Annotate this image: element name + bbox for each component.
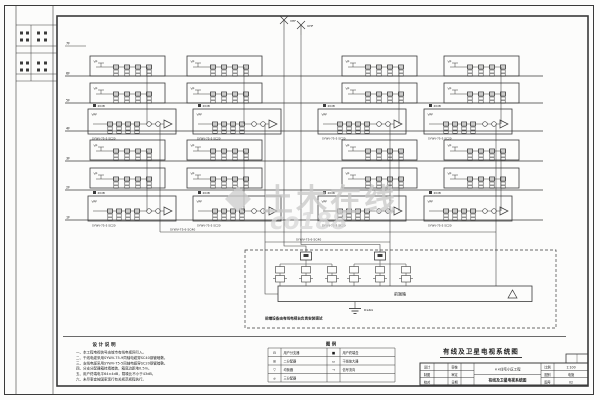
label-boxes-branch_cable_label: SYWV-75-5 SC20	[428, 137, 452, 141]
label-boxes-wide_label: VPF	[197, 200, 203, 204]
label-legend-rows-0-name2: 用户终端盒	[343, 350, 360, 355]
label-boxes-wide_gain_label: 20dB	[98, 191, 105, 195]
label-titleblock-project_name: ××住宅小区工程	[494, 367, 521, 372]
label-boxes-std_label: VP	[94, 87, 98, 91]
label-legend-rows-3-sym1: ⌀	[273, 376, 275, 380]
label-boxes-wide_gain_label: 20dB	[434, 191, 441, 195]
label-boxes-wide_label: VPF	[92, 200, 98, 204]
label-boxes-std_label: VP	[191, 87, 195, 91]
label-antennas-right_label: UHF	[307, 24, 313, 28]
label-floors-1: 6F	[66, 72, 70, 76]
label-titleblock-scale_label: 比例	[544, 365, 550, 370]
label-boxes-std_label: VP	[448, 60, 452, 64]
bottom-annotations: 设 计 说 明一、本工程电视信号由城市有线电视网引入。二、干线电缆采用SYWV-…	[63, 337, 566, 383]
label-boxes-std_label: VP	[94, 172, 98, 176]
watermark-brand-text: 土木在线	[262, 183, 398, 219]
cad-diagram-canvas: 7F6F5F4F3F2F1FVPVPVPVPVPVPVPVPVPVPVPVPVP…	[0, 0, 600, 400]
label-titleblock-no_value: 02	[569, 380, 573, 384]
label-boxes-wide_gain_label: 20dB	[203, 104, 210, 108]
label-boxes-std_label: VP	[94, 144, 98, 148]
label-boxes-std_label: VP	[346, 144, 350, 148]
label-notes-lines-0: 一、本工程电视信号由城市有线电视网引入。	[76, 350, 146, 355]
label-boxes-std_label: VP	[346, 172, 350, 176]
label-legend-rows-2-name2: 信号流向	[343, 367, 356, 372]
label-titleblock-drawing_name: 有线及卫星电视系统图	[489, 378, 527, 383]
label-riser_labels-0: SYWV-75-9 SC40	[170, 228, 195, 232]
label-boxes-wide_gain_label: 20dB	[328, 104, 335, 108]
label-boxes-branch_cable_label: SYWV-75-5 SC20	[92, 137, 116, 141]
label-floors-4: 3F	[66, 157, 70, 161]
label-riser_labels-1: SYWV-75-9 SC40	[296, 238, 321, 242]
label-titleblock-mid_rows-2-0: 日期	[451, 379, 457, 384]
label-boxes-wide_label: VPF	[197, 113, 203, 117]
label-boxes-wide_label: VPF	[322, 113, 328, 117]
label-boxes-std_label: VP	[191, 172, 195, 176]
label-headend-unit_label: 前端箱	[394, 291, 406, 297]
label-notes-lines-5: 六、未尽事宜按国家现行有关规范规程执行。	[76, 377, 146, 382]
label-legend-rows-0-sym2: ■	[332, 351, 335, 355]
label-boxes-wide_label: VPF	[428, 113, 434, 117]
label-boxes-std_label: VP	[191, 144, 195, 148]
label-boxes-std_label: VP	[94, 60, 98, 64]
label-notes-lines-1: 二、干线电缆采用SYWV-75-9同轴电缆穿SC40钢管暗敷。	[76, 355, 167, 360]
label-legend-rows-1-sym1: ⊞	[273, 359, 276, 363]
label-notes-lines-3: 四、分支分配器箱挂墙暗装，箱底边距地0.5m。	[76, 366, 151, 371]
label-titleblock-left_rows-1-0: 制图	[424, 372, 430, 377]
label-floors-6: 1F	[66, 216, 70, 220]
label-floors-5: 2F	[66, 186, 70, 190]
label-headend-ground_label: R≤4Ω	[364, 308, 374, 312]
cad-diagram-svg: 7F6F5F4F3F2F1FVPVPVPVPVPVPVPVPVPVPVPVPVP…	[0, 0, 600, 400]
label-legend-rows-2-sym2: →	[332, 368, 335, 372]
label-legend-rows-1-sym2: ▭	[332, 359, 335, 363]
label-page-title: 有线及卫星电视系统图	[443, 347, 519, 356]
label-titleblock-scale_value: 1:100	[566, 366, 575, 370]
label-legend-rows-0-name1: 用户分支器	[284, 350, 301, 355]
label-boxes-branch_cable_label: SYWV-75-5 SC20	[92, 224, 116, 228]
label-legend-title: 图 例	[326, 341, 337, 348]
watermark: co188土木在线	[225, 183, 398, 235]
label-floors-0: 7F	[66, 42, 70, 46]
cad-drawing-page: 7F6F5F4F3F2F1FVPVPVPVPVPVPVPVPVPVPVPVPVP…	[0, 0, 600, 400]
label-boxes-wide_gain_label: 20dB	[434, 104, 441, 108]
label-boxes-branch_cable_label: SYWV-75-5 SC20	[428, 224, 452, 228]
signature-margin-table	[16, 25, 57, 81]
label-notes-lines-2: 三、支线电缆采用SYWV-75-5同轴电缆穿SC20钢管暗敷。	[76, 360, 167, 365]
label-boxes-branch_cable_label: SYWV-75-5 SC20	[322, 137, 346, 141]
label-headend-amp_note: 前端设备由有线电视台负责安装调试	[265, 316, 323, 321]
label-titleblock-mid_rows-0-0: 审核	[451, 365, 458, 370]
label-titleblock-type_label: 图别	[544, 372, 550, 377]
label-notes-lines-4: 五、用户终端电平64±4dB，载噪比不小于43dB。	[76, 371, 155, 376]
label-boxes-wide_gain_label: 20dB	[98, 104, 105, 108]
label-antennas-left_label: VHF	[290, 19, 296, 23]
label-legend-rows-0-sym1: ⊟	[273, 351, 276, 355]
label-titleblock-mid_rows-1-0: 审定	[451, 372, 458, 377]
label-boxes-wide_gain_label: 20dB	[203, 191, 210, 195]
label-titleblock-left_rows-2-0: 校对	[424, 379, 431, 384]
headend-enclosure: 前端箱R≤4Ω前端设备由有线电视台负责安装调试	[245, 250, 556, 328]
label-titleblock-type_value: 电施	[568, 372, 575, 377]
label-boxes-std_label: VP	[346, 60, 350, 64]
label-legend-rows-1-name1: 二分配器	[284, 358, 298, 363]
label-boxes-std_label: VP	[448, 172, 452, 176]
title-block: 设计制图校对审核审定日期××住宅小区工程有线及卫星电视系统图比例1:100图别电…	[420, 354, 588, 385]
label-floors-2: 5F	[66, 99, 70, 103]
label-boxes-branch_cable_label: SYWV-75-5 SC20	[197, 137, 221, 141]
label-boxes-std_label: VP	[448, 144, 452, 148]
label-boxes-wide_label: VPF	[428, 200, 434, 204]
riser-lines: SYWV-75-9 SC40SYWV-75-9 SC40	[147, 67, 501, 294]
label-legend-rows-2-name1: 均衡器	[284, 367, 294, 372]
label-boxes-branch_cable_label: SYWV-75-5 SC20	[197, 224, 221, 228]
label-boxes-wide_label: VPF	[92, 113, 98, 117]
label-floors-3: 4F	[66, 127, 70, 131]
label-titleblock-left_rows-0-0: 设计	[424, 365, 431, 370]
label-notes-title: 设 计 说 明	[92, 341, 116, 348]
label-boxes-std_label: VP	[346, 87, 350, 91]
label-legend-rows-2-sym1: ▽	[273, 368, 276, 372]
label-titleblock-no_label: 图号	[544, 379, 550, 384]
label-boxes-std_label: VP	[191, 60, 195, 64]
label-legend-rows-1-name2: 干线放大器	[343, 358, 360, 363]
label-boxes-std_label: VP	[448, 87, 452, 91]
label-legend-rows-3-name1: 三分配器	[284, 375, 298, 380]
